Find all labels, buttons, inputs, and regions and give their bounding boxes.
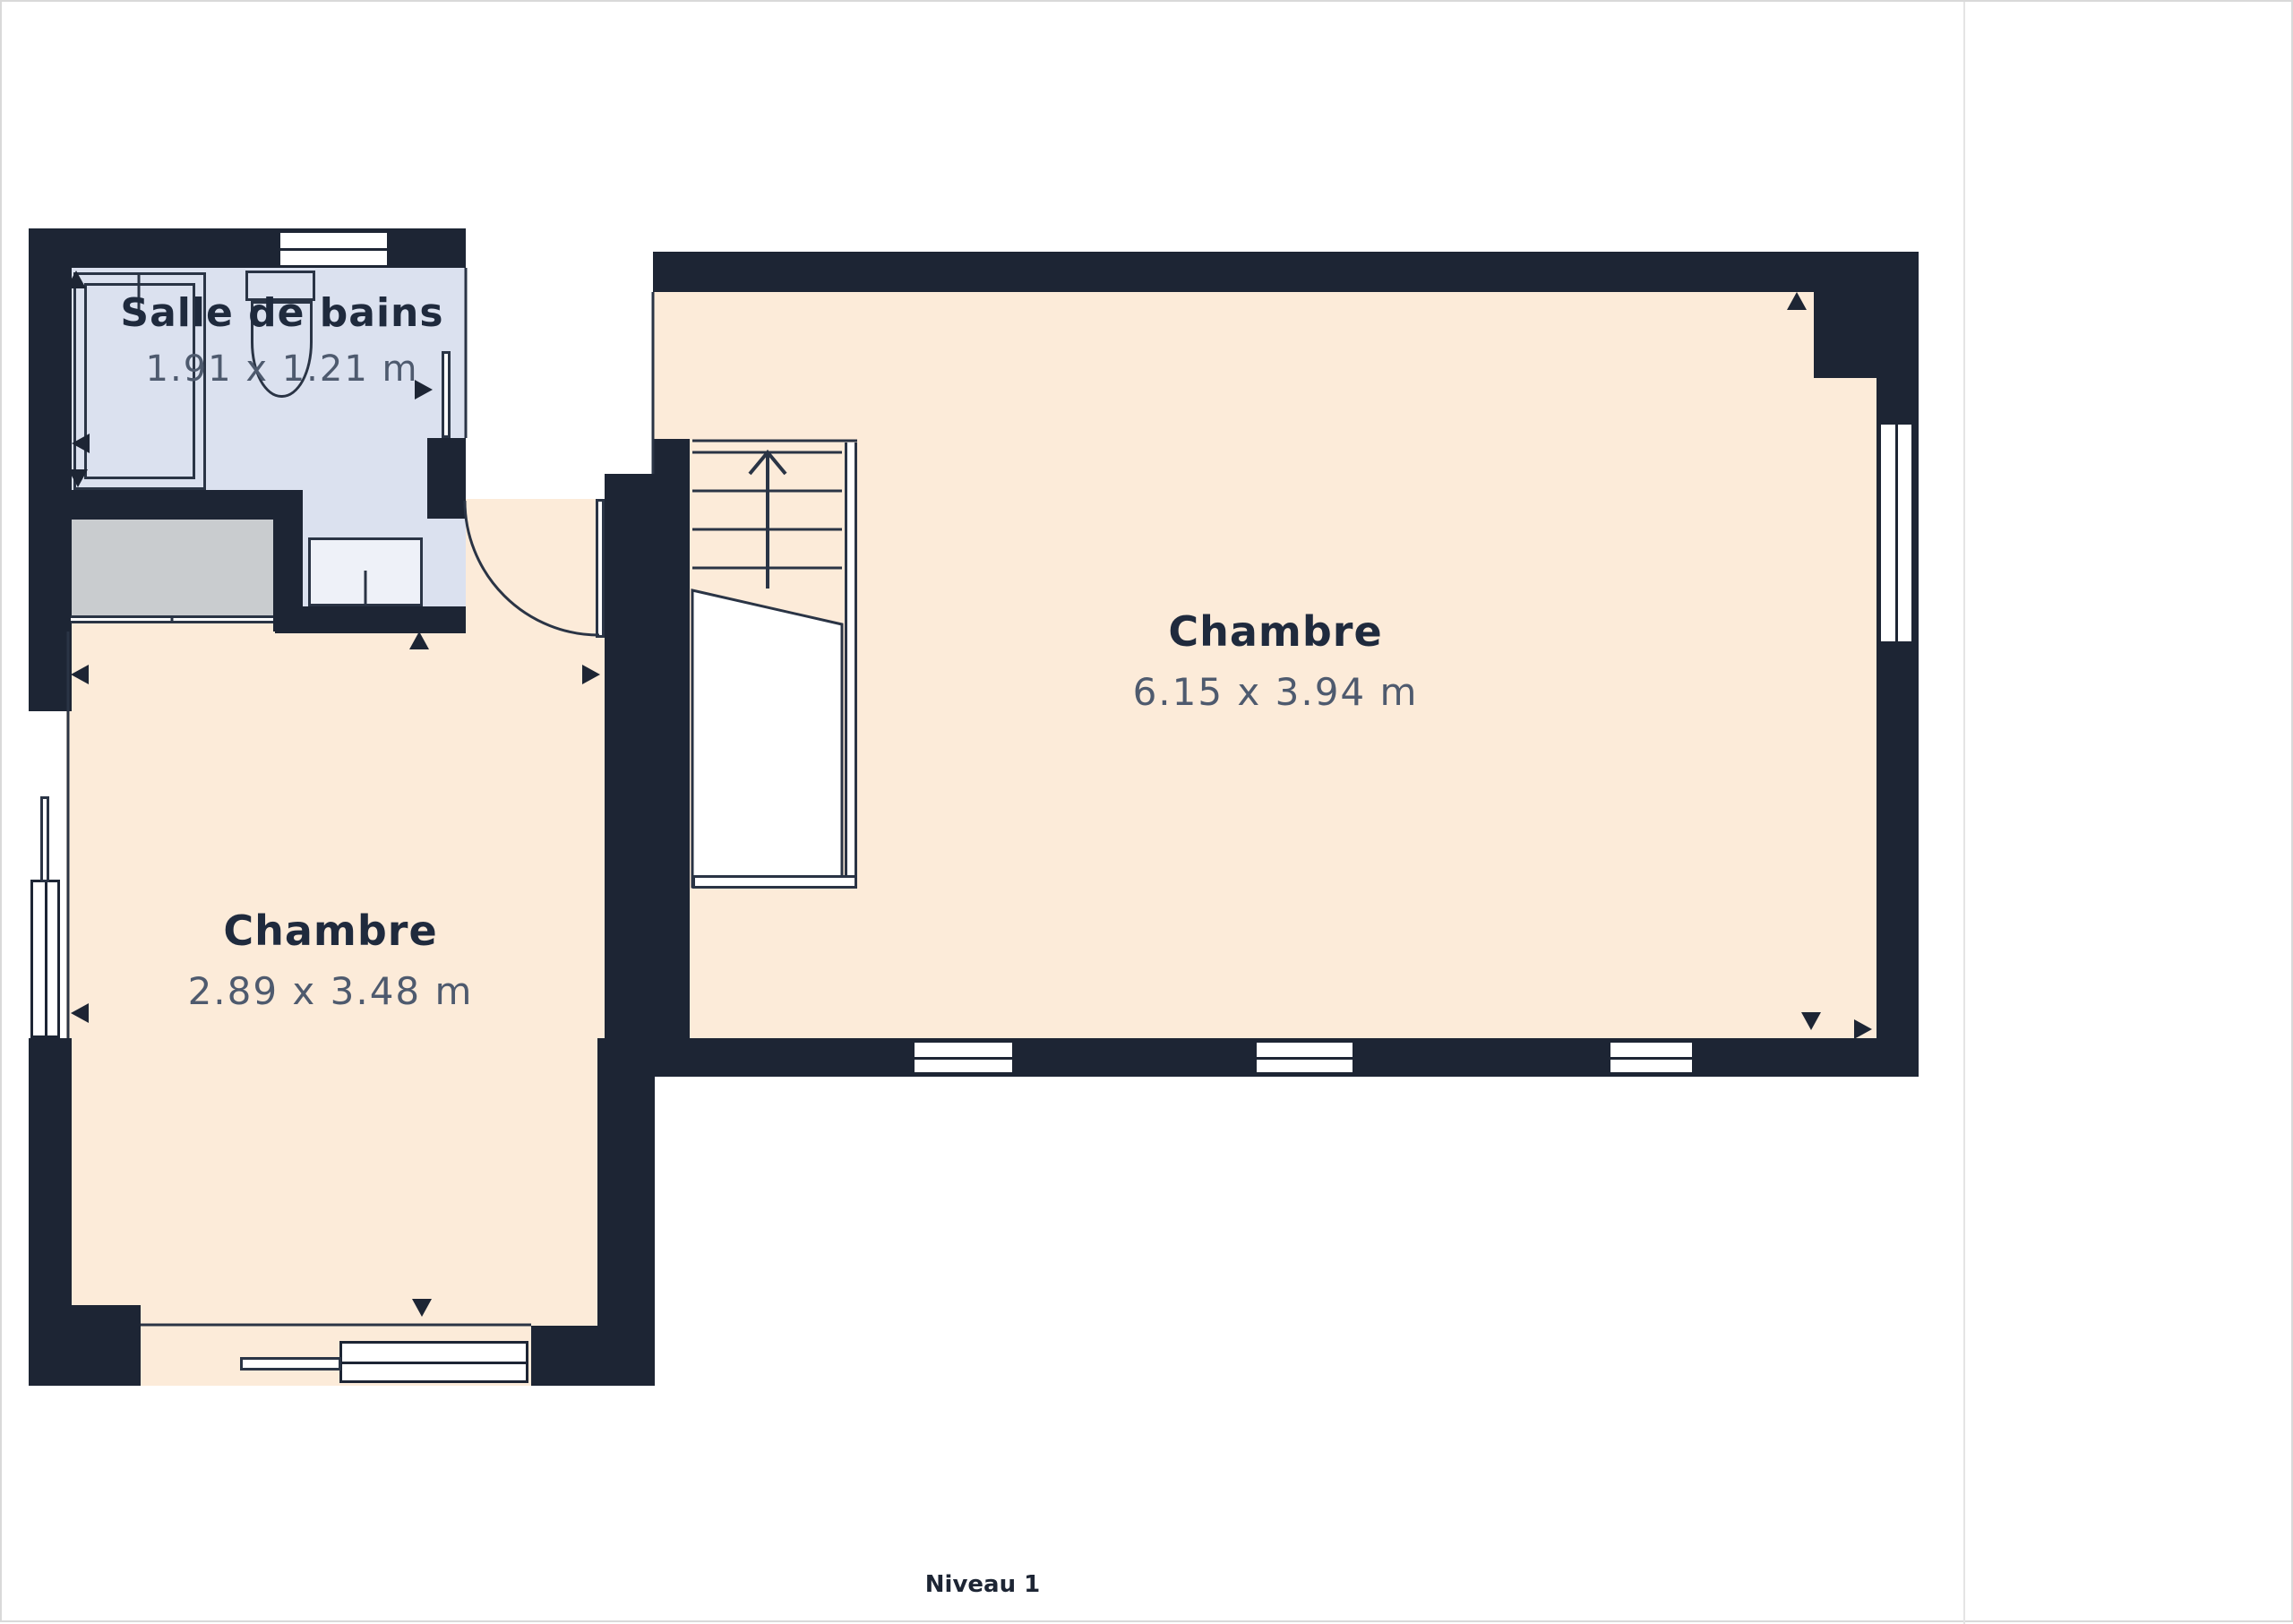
sidebar: MAS TERRA vous facilite l'immobilier Sur… (1963, 2, 2293, 1624)
bedroom-main-window-bottom-2 (1254, 1040, 1355, 1075)
bathroom-window (278, 230, 390, 268)
room-name: Chambre (188, 907, 474, 955)
bedroom-left-door-leaf (596, 499, 605, 638)
camera-marker-icon (71, 1003, 89, 1023)
wall (653, 439, 690, 1038)
wall (531, 1326, 597, 1386)
wall (275, 606, 466, 633)
room-dimensions: 6.15 x 3.94 m (1133, 670, 1419, 714)
wall (1876, 252, 1919, 1077)
camera-marker-icon (68, 469, 88, 487)
bedroom-main-window-right (1878, 422, 1914, 644)
sink (308, 537, 423, 606)
bedroom-left-bay-window (339, 1341, 528, 1383)
camera-marker-icon (412, 1299, 432, 1317)
stair-railing-right (845, 443, 857, 889)
room-label-bedroom-main: Chambre 6.15 x 3.94 m (1133, 607, 1419, 714)
camera-marker-icon (1854, 1019, 1872, 1039)
camera-marker-icon (72, 434, 90, 453)
wall (597, 1038, 655, 1386)
wall (653, 252, 1919, 292)
wall (605, 474, 653, 1038)
wall (29, 228, 466, 268)
window-frame-stub (40, 796, 49, 882)
level-label: Niveau 1 (925, 1571, 1040, 1598)
room-dimensions: 1.91 x 1.21 m (120, 348, 443, 390)
bedroom-main-window-bottom-3 (1608, 1040, 1695, 1075)
camera-marker-icon (409, 632, 429, 649)
camera-marker-icon (71, 665, 89, 684)
camera-marker-icon (582, 665, 600, 684)
stair-railing-bottom (692, 875, 857, 889)
bedroom-main-window-bottom-1 (912, 1040, 1015, 1075)
floorplan-page: Salle de bains 1.91 x 1.21 m Chambre 6.1… (0, 0, 2293, 1622)
bedroom-left-side-window (30, 880, 60, 1038)
room-dimensions: 2.89 x 3.48 m (188, 969, 474, 1013)
closet-fill (71, 520, 273, 615)
room-label-bathroom: Salle de bains 1.91 x 1.21 m (120, 290, 443, 390)
camera-marker-icon (66, 271, 86, 288)
wall (29, 228, 72, 711)
room-name: Salle de bains (120, 290, 443, 336)
room-label-bedroom-left: Chambre 2.89 x 3.48 m (188, 907, 474, 1013)
wall (71, 490, 273, 520)
wall (427, 438, 466, 519)
wall (29, 1305, 141, 1386)
room-name: Chambre (1133, 607, 1419, 656)
camera-marker-icon (1787, 292, 1807, 310)
bay-sliding-door-leaf (240, 1357, 341, 1371)
closet-doors (71, 615, 273, 623)
camera-marker-icon (1801, 1012, 1821, 1030)
